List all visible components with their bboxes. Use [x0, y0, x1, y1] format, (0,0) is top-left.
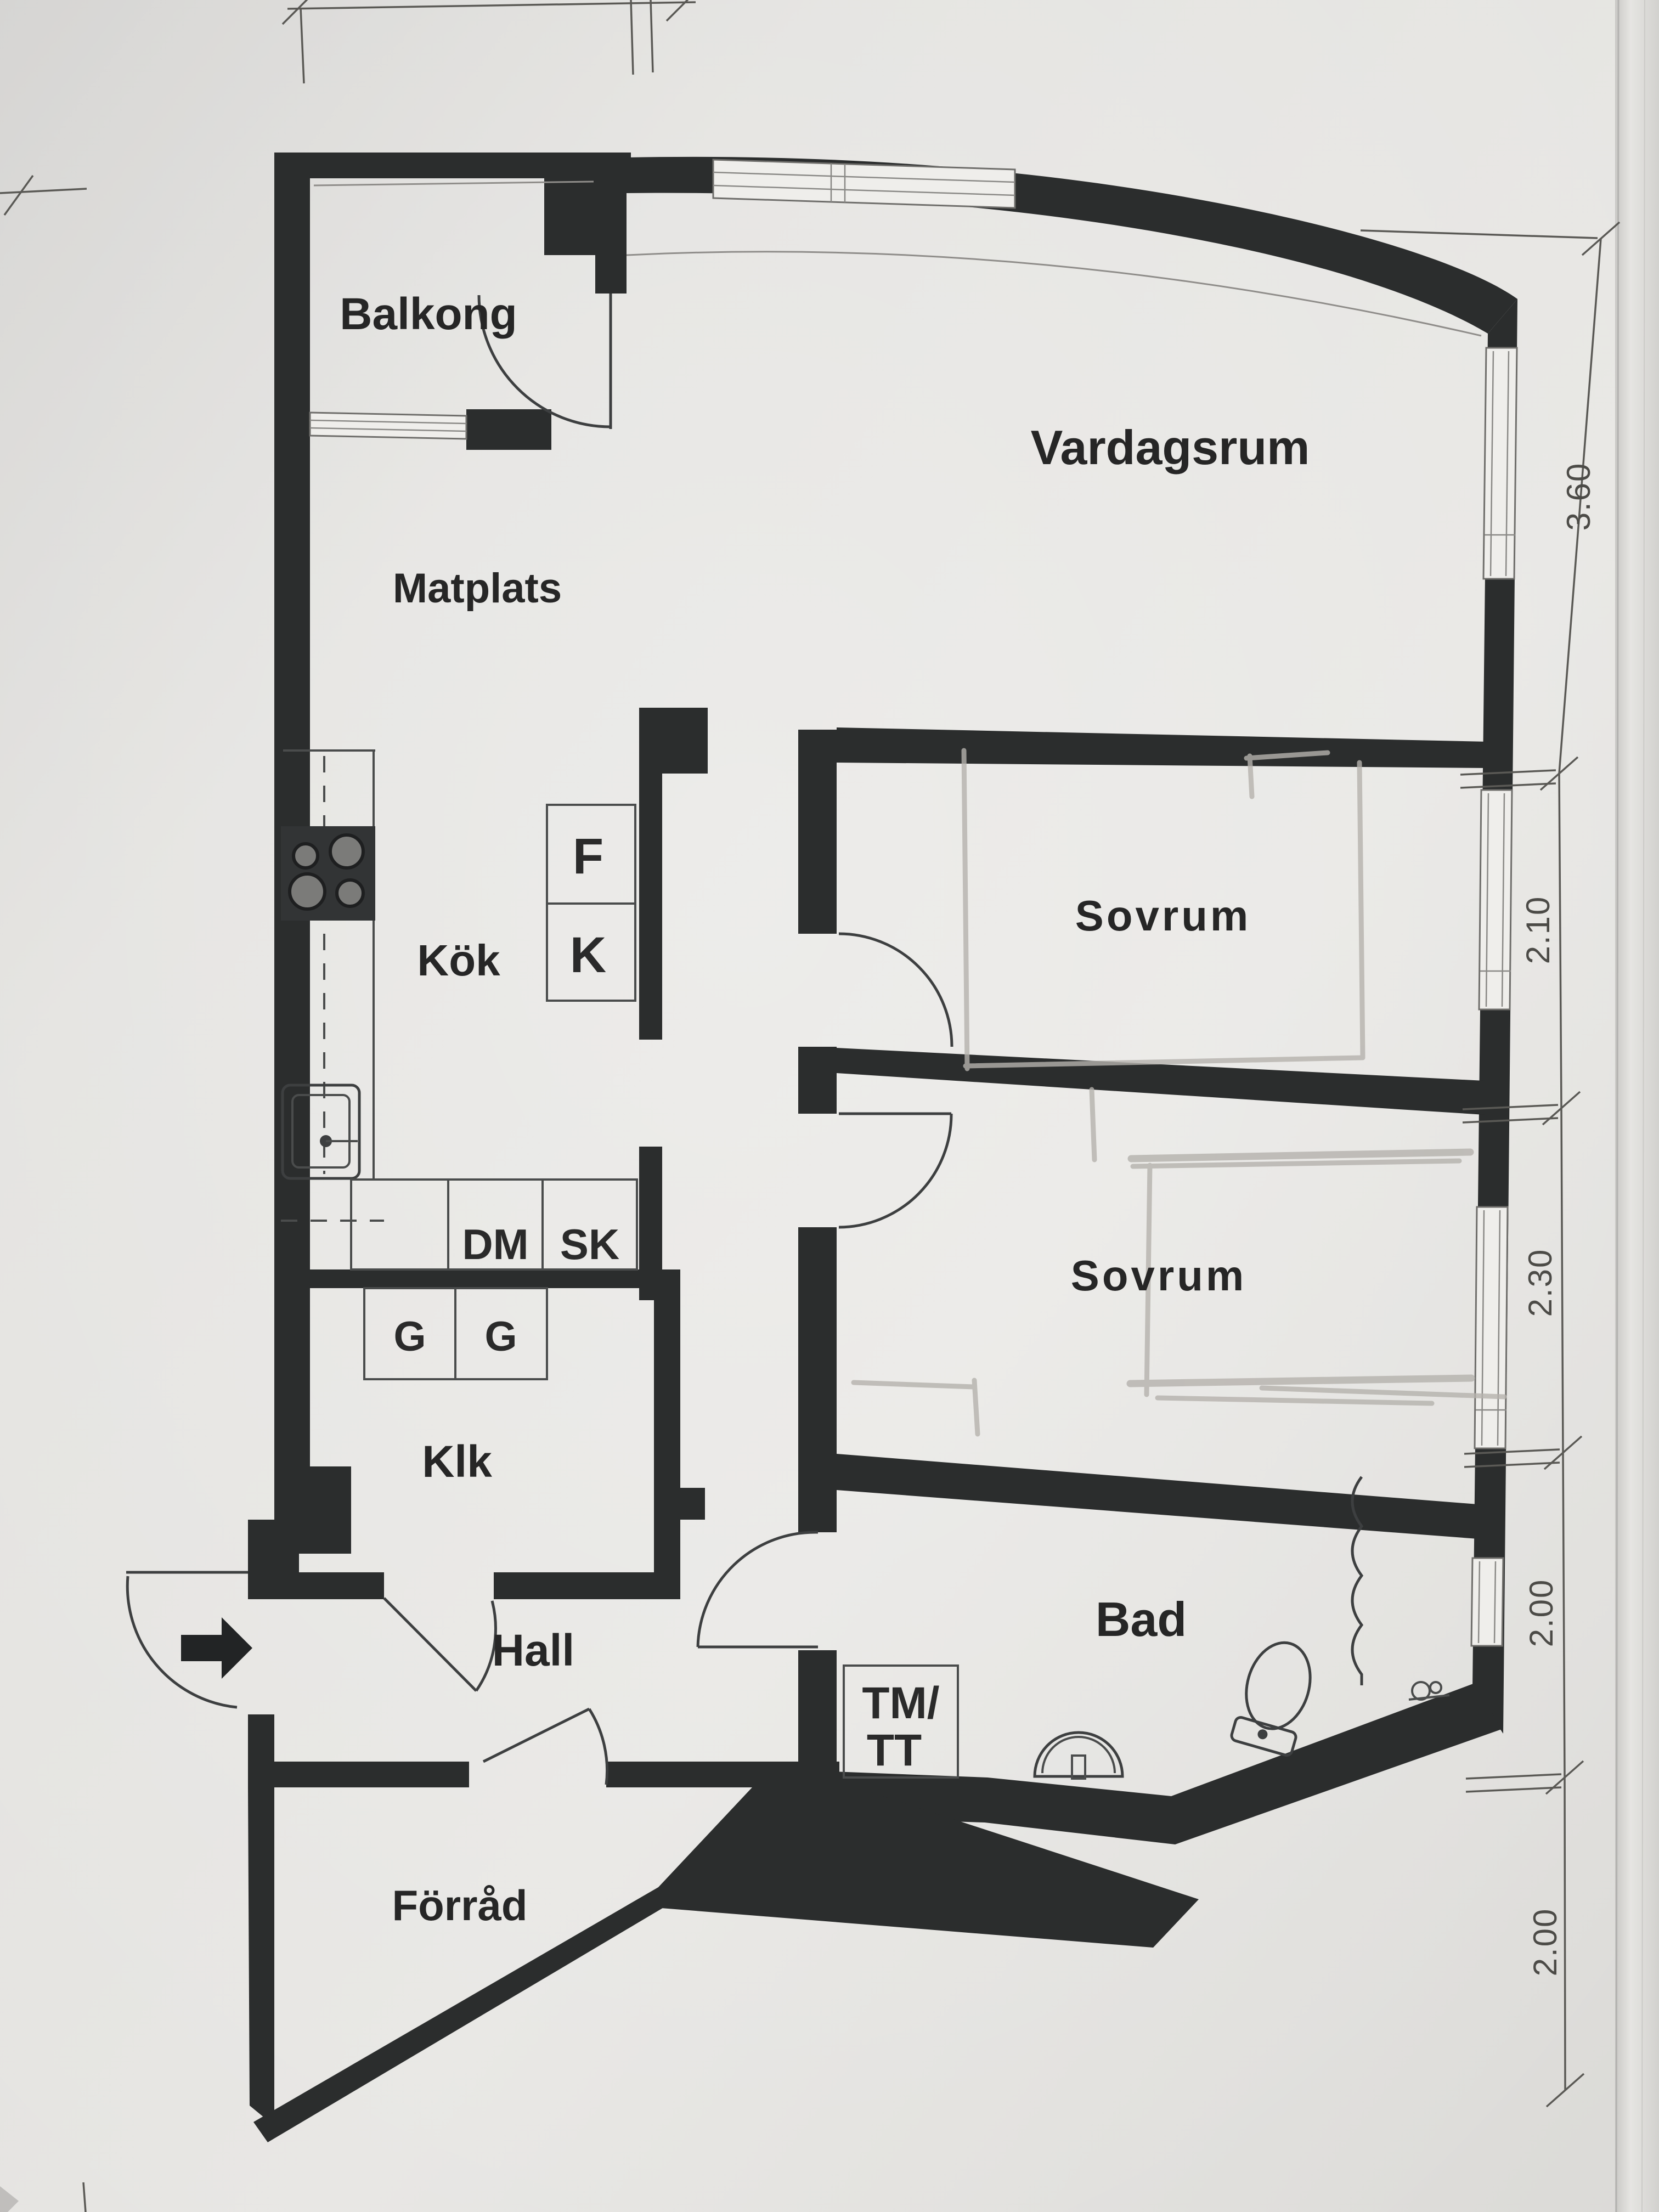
dimension-label-3: 2.00 [1523, 1579, 1560, 1647]
window-bad [1471, 1558, 1503, 1646]
wall-klk-bottom-left [248, 1572, 384, 1599]
cabinet-label-k: K [570, 927, 606, 983]
room-label-vardagsrum: Vardagsrum [1031, 420, 1310, 475]
window-sovrum1 [1479, 790, 1512, 1009]
pencil-mark-wall [1092, 1090, 1094, 1160]
wall-kok-klk [296, 1269, 680, 1288]
room-label-sovrum-1: Sovrum [1075, 891, 1251, 940]
wall-entry-jamb-top [248, 1520, 274, 1572]
wall-corridor-c [798, 1227, 837, 1532]
wall-klk-bottom-right [494, 1572, 680, 1599]
room-label-matplats: Matplats [393, 565, 562, 612]
wall-corridor-d [798, 1650, 837, 1787]
page-edge [1615, 0, 1659, 2212]
laundry-label-line1: TM/ [862, 1678, 939, 1728]
pencil-bed1-right [1359, 763, 1363, 1058]
room-label-forrad: Förråd [392, 1881, 527, 1929]
pencil-bed1-left [964, 751, 967, 1069]
wall-hall-bottom-left [248, 1762, 469, 1787]
window-vardagsrum [1483, 348, 1517, 579]
wall-klk-right [654, 1288, 680, 1572]
floorplan-photo: Balkong Vardagsrum Matplats Kök Sovrum S… [0, 0, 1659, 2212]
dimension-label-0: 3.60 [1560, 462, 1597, 531]
wall-corridor-a [798, 730, 837, 934]
room-label-hall: Hall [492, 1626, 574, 1675]
cabinet-label-g2: G [484, 1313, 517, 1360]
room-label-kok: Kök [417, 936, 500, 985]
wall-kok-stub-lower [639, 1147, 662, 1300]
pencil-side-table-right [974, 1380, 978, 1434]
stove-icon [281, 826, 375, 921]
wall-entry-jamb-bottom [248, 1714, 274, 1787]
cabinet-label-f: F [573, 828, 603, 884]
room-label-sovrum-2: Sovrum [1071, 1251, 1246, 1300]
cabinet-label-g1: G [393, 1313, 426, 1360]
wall-klk-right-foot [680, 1488, 705, 1520]
wall-left-step [274, 1466, 351, 1554]
wall-kok-chunk [639, 708, 708, 774]
window-sovrum2 [1475, 1207, 1508, 1448]
dimension-label-1: 2.10 [1520, 896, 1556, 964]
wall-forrad-left [248, 1787, 274, 2126]
wall-corridor-b [798, 1047, 837, 1114]
window-balcony-sill [310, 413, 466, 439]
wall-balcony-sill-block [466, 409, 551, 450]
wall-kok-stub [639, 774, 662, 1040]
wall-balcony-right-chunk [544, 163, 627, 255]
pencil-bed1-mark1 [1250, 756, 1252, 797]
cabinet-label-sk: SK [560, 1220, 619, 1268]
dimension-label-2: 2.30 [1522, 1249, 1559, 1317]
dimension-label-4: 2.00 [1527, 1908, 1564, 1977]
cabinet-label-dm: DM [462, 1220, 528, 1268]
laundry-label-line2: TT [867, 1725, 922, 1775]
wall-left-lower [274, 1554, 299, 1575]
room-label-bad: Bad [1096, 1592, 1187, 1646]
floorplan-svg: Balkong Vardagsrum Matplats Kök Sovrum S… [0, 0, 1659, 2212]
room-label-balkong: Balkong [340, 289, 517, 339]
room-label-klk: Klk [422, 1437, 492, 1487]
wall-balcony-right [595, 255, 627, 294]
